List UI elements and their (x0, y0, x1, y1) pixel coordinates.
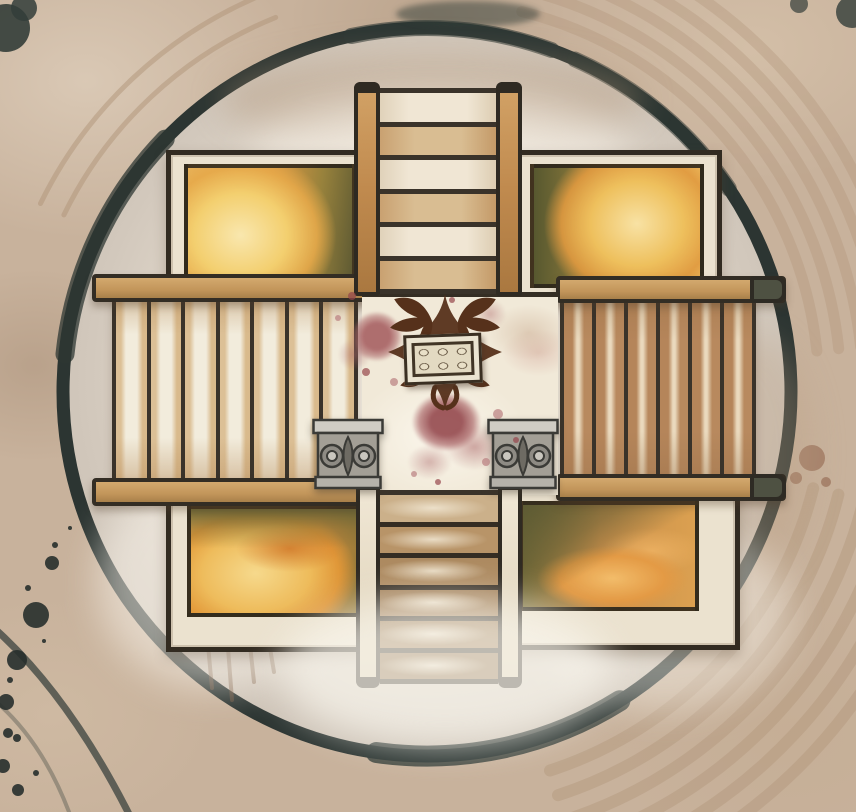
blood-spatter-dot (411, 471, 417, 477)
bridge-plank (628, 295, 660, 477)
ink-dot (23, 602, 49, 628)
blood-spatter-dot (348, 292, 356, 300)
east-bridge-top-beam (556, 276, 786, 303)
bridge-plank (564, 295, 596, 477)
bridge-plank (254, 294, 289, 478)
west-bridge-top-beam (92, 274, 372, 302)
ink-dot (42, 639, 46, 643)
pillar-capital-right (487, 418, 559, 490)
ink-dot (7, 650, 27, 670)
ink-dot (7, 677, 13, 683)
north-stairs-right-rail (496, 82, 522, 296)
chamber-southwest-glow (187, 505, 365, 617)
bridge-plank (151, 294, 186, 478)
east-bridge-bottom-beam-cap (750, 474, 786, 501)
north-stair-step (380, 160, 496, 194)
blood-spatter-dot (493, 409, 503, 419)
bridge-plank (116, 294, 151, 478)
ink-dot (45, 556, 59, 570)
altar (403, 333, 483, 386)
ink-dot (0, 759, 10, 773)
south-stair-step (380, 495, 498, 527)
south-stair-step (380, 527, 498, 559)
ink-dot (3, 728, 13, 738)
ink-dot (33, 770, 39, 776)
blood-spatter-dot (435, 479, 441, 485)
ink-dot (25, 585, 31, 591)
rust-spot (821, 477, 831, 487)
ink-dot (0, 694, 14, 710)
blood-spatter-dot (482, 458, 490, 466)
ink-dot (52, 542, 58, 548)
blood-spatter-dot (390, 378, 398, 386)
east-bridge-planks (560, 295, 756, 477)
east-bridge-top-beam-cap (750, 276, 786, 303)
ink-dot (68, 526, 72, 530)
corner-thin-arc-faint (0, 700, 72, 812)
bridge-plank (724, 295, 756, 477)
east-bridge-bottom-beam (556, 474, 786, 501)
north-stair-step (380, 227, 496, 261)
bridge-plank (660, 295, 692, 477)
north-stair-step (380, 261, 496, 295)
fluff-bottom (280, 596, 610, 746)
altar-cobblestones (411, 341, 474, 377)
blood-spatter-dot (449, 297, 455, 303)
chamber-northeast-glow (530, 164, 704, 288)
bridge-plank (596, 295, 628, 477)
north-stair-step (380, 194, 496, 228)
north-stair-step (380, 93, 496, 127)
bridge-plank (185, 294, 220, 478)
bridge-plank (220, 294, 255, 478)
bridge-plank (692, 295, 724, 477)
battle-map (0, 0, 856, 812)
blood-spatter-dot (513, 437, 519, 443)
blood-spatter-dot (362, 368, 370, 376)
chamber-southeast-glow (519, 501, 699, 611)
pillar-capital-left (312, 418, 384, 490)
ink-dot (13, 734, 21, 742)
north-stairs-steps (380, 88, 496, 294)
chamber-northwest-glow (184, 164, 356, 288)
ink-dot (12, 784, 24, 796)
north-stairs-left-rail (354, 82, 380, 296)
north-stair-step (380, 127, 496, 161)
blood-spatter-dot (335, 315, 341, 321)
ink-dot-trail (0, 526, 72, 796)
south-stair-step (380, 558, 498, 590)
